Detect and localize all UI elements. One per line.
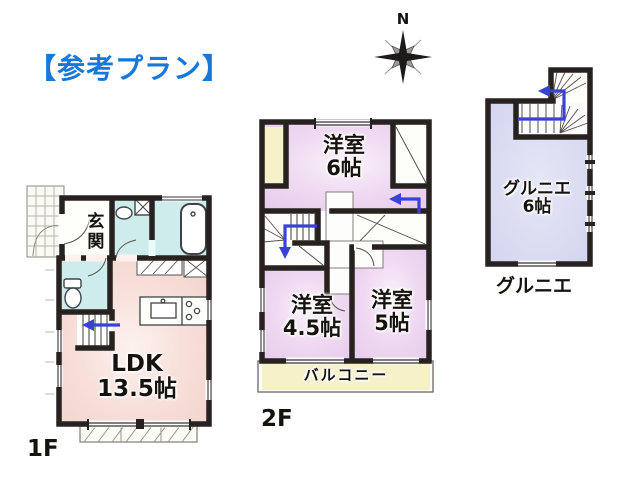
balcony-label: バルコニー: [304, 367, 389, 383]
grenier-size: 6帖: [503, 198, 571, 216]
compass-main-star: [374, 30, 432, 84]
floor-label-2f: 2F: [261, 407, 293, 432]
washbasin-icon: [116, 207, 132, 219]
floor-plan-attic: [488, 70, 595, 268]
room6-size: 6帖: [323, 157, 365, 180]
kitchen-counter: [140, 297, 208, 325]
room-label-4-5jo: 洋室 4.5帖: [283, 294, 341, 339]
closets-1f: [137, 258, 208, 277]
room-label-entrance: 玄関: [84, 212, 102, 252]
room45-size: 4.5帖: [283, 317, 341, 340]
closet-2f: [262, 127, 285, 184]
ldk-size: 13.5帖: [97, 377, 177, 402]
compass-icon: [374, 30, 432, 84]
dimension-ticks: [45, 270, 54, 394]
room6-name: 洋室: [323, 134, 365, 157]
room-label-5jo: 洋室 5帖: [371, 289, 413, 334]
room45-name: 洋室: [283, 294, 341, 317]
toilet-icon: [64, 279, 81, 308]
grenier-name: グルニエ: [503, 180, 571, 198]
porch-tiles: [27, 186, 64, 257]
compass-north-label: N: [397, 11, 410, 27]
room-label-6jo: 洋室 6帖: [323, 134, 365, 179]
ldk-name: LDK: [97, 352, 177, 377]
room5-size: 5帖: [371, 312, 413, 335]
room5-name: 洋室: [371, 289, 413, 312]
floor-label-1f: 1F: [27, 437, 59, 462]
floorplan-image: 【参考プラン】 N 玄関 LDK 13.5帖 1F 洋室 6帖 洋室 4.5帖 …: [0, 0, 640, 480]
floor-plan-1f: [27, 186, 213, 442]
room-label-ldk: LDK 13.5帖: [97, 352, 177, 402]
washing-machine-icon: [135, 199, 151, 215]
room-label-grenier: グルニエ 6帖: [503, 180, 571, 217]
plan-title: 【参考プラン】: [28, 54, 231, 84]
bathtub-drain: [191, 212, 195, 216]
floor-label-attic: グルニエ: [496, 276, 572, 297]
